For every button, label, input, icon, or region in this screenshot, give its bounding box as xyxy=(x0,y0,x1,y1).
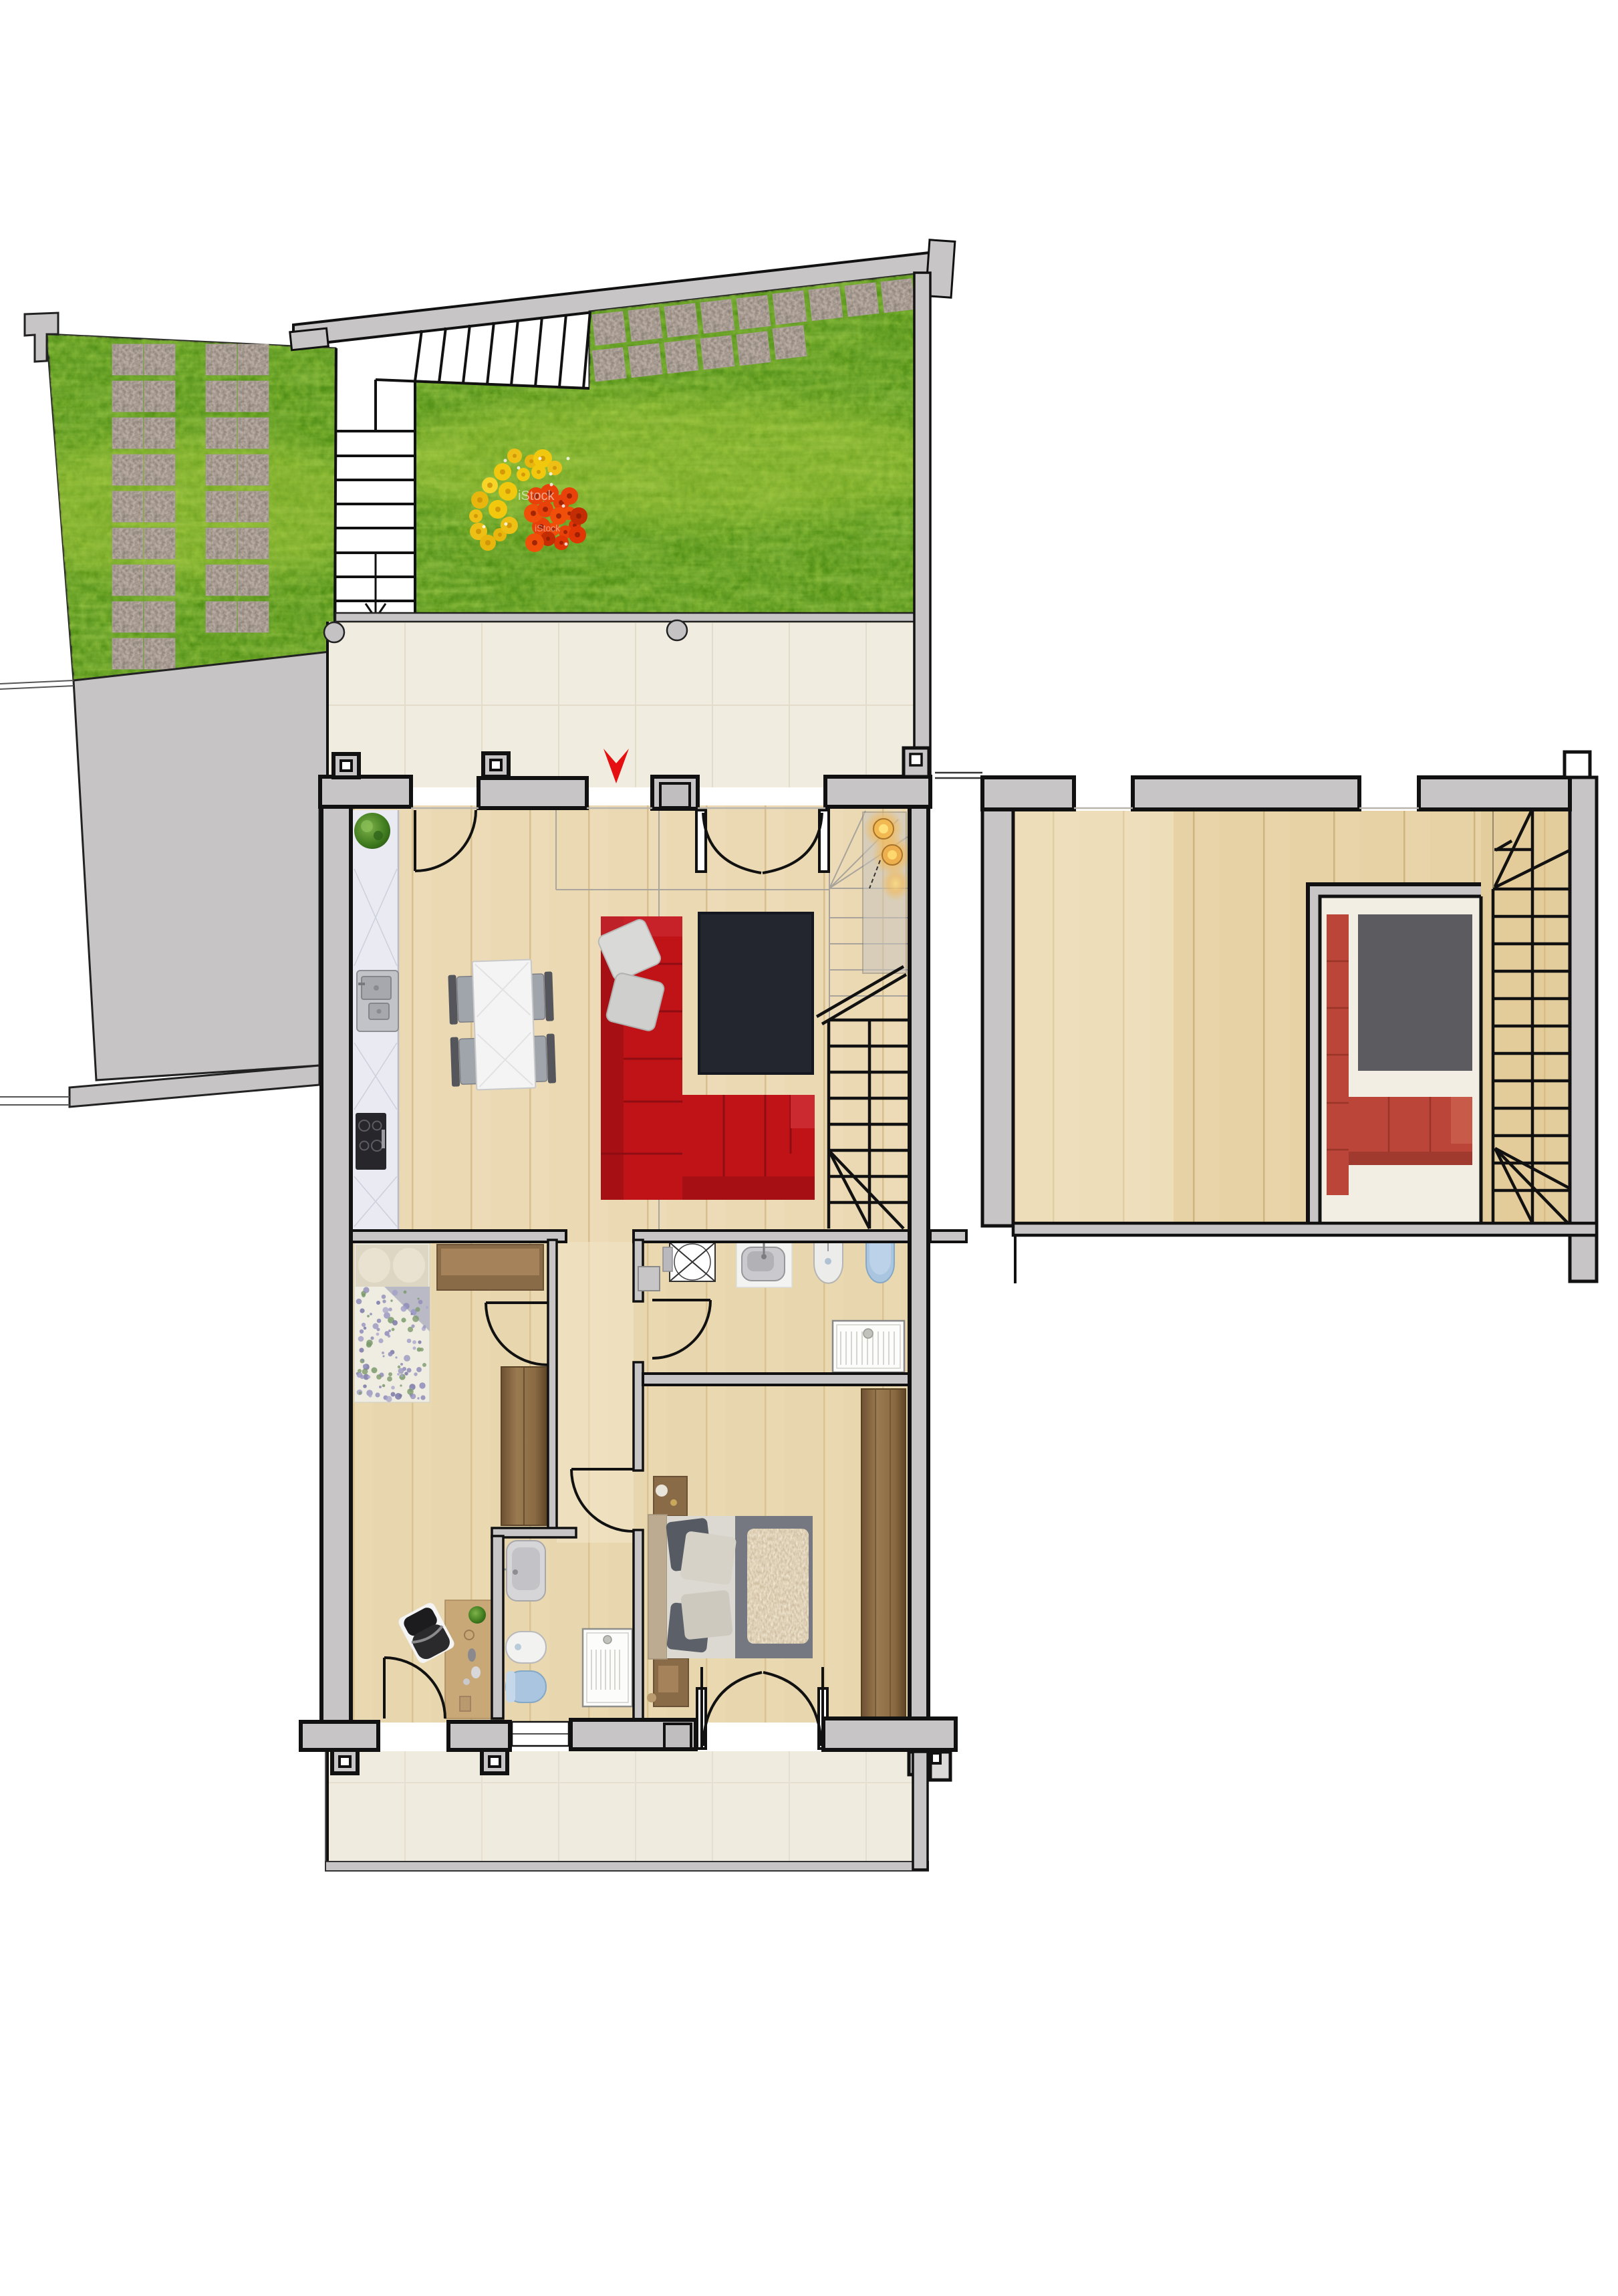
svg-text:iStock: iStock xyxy=(518,489,555,503)
svg-text:iStock: iStock xyxy=(535,523,561,533)
